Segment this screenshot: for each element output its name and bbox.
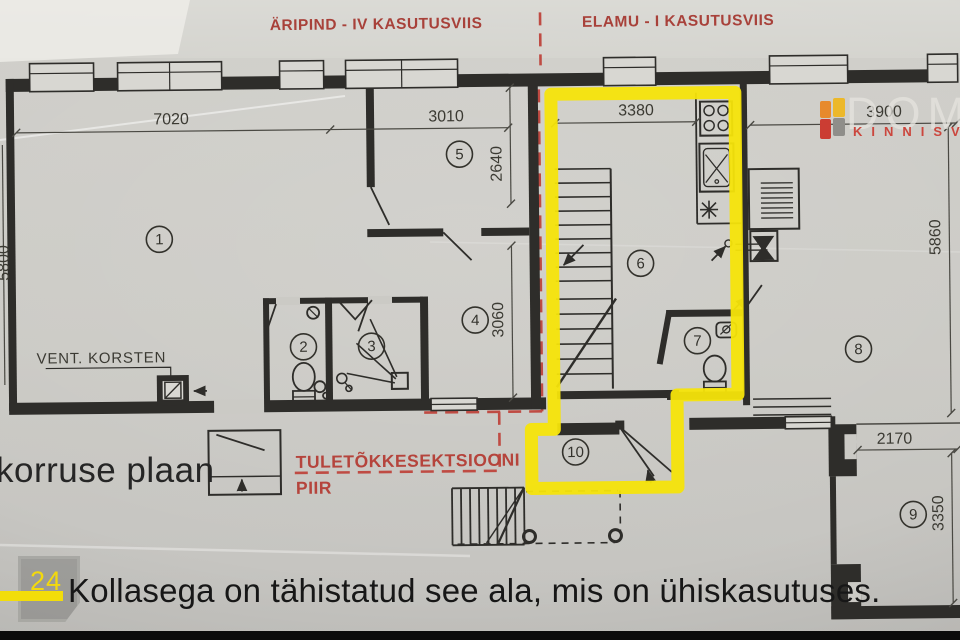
shower-room3-fixtures (336, 319, 408, 392)
section-label-left: ÄRIPIND - IV KASUTUSVIIS (270, 15, 483, 34)
brand-logo-icon (820, 98, 846, 140)
floorplan-photo: ÄRIPIND - IV KASUTUSVIIS ELAMU - I KASUT… (0, 0, 960, 640)
dim-room9-height: 3350 (930, 495, 947, 531)
floor-plan: ÄRIPIND - IV KASUTUSVIIS ELAMU - I KASUT… (0, 0, 960, 640)
plan-drawing: ÄRIPIND - IV KASUTUSVIIS ELAMU - I KASUT… (0, 8, 960, 628)
sink-icon (699, 143, 734, 191)
room-label-10: 10 (567, 444, 584, 461)
room-label-9: 9 (909, 506, 918, 523)
room-label-8: 8 (854, 341, 863, 358)
porch-steps (753, 398, 831, 415)
caption-text: Kollasega on tähistatud see ala, mis on … (68, 572, 880, 610)
dim-room9-width: 2170 (877, 430, 913, 447)
room-label-3: 3 (367, 338, 376, 355)
section-label-right: ELAMU - I KASUTUSVIIS (582, 12, 774, 31)
dim-room8-height: 5860 (927, 219, 944, 255)
asterisk-symbol (700, 201, 718, 219)
stove-icon (700, 101, 732, 135)
dim-room1-width: 7020 (153, 111, 189, 128)
room-label-1: 1 (155, 231, 164, 248)
room-label-2: 2 (299, 339, 308, 356)
floor-plan-title: korruse plaan (0, 451, 215, 491)
wc-room2-fixtures (292, 307, 329, 403)
fire-section-label-line1: TULETÕKKESEKTSIOONI (296, 449, 521, 472)
dim-room6-width: 3380 (618, 102, 654, 119)
exterior-stairs (452, 487, 622, 546)
room-label-4: 4 (471, 312, 480, 329)
vent-korsten-label: VENT. KORSTEN (37, 349, 167, 367)
brand-watermark: DOMU KINNISVA (820, 96, 960, 151)
page-number: 24 (30, 566, 62, 597)
entrance-vestibule (208, 430, 281, 495)
stairs (555, 169, 617, 390)
brand-subtitle: KINNISVA (853, 124, 960, 139)
dim-left-height: 5800 (0, 245, 13, 281)
dim-room5-width: 3010 (428, 108, 464, 125)
dimension-lines (2, 79, 960, 617)
room-label-7: 7 (693, 333, 702, 350)
bottom-bar (0, 631, 960, 640)
dim-room5-height: 2640 (488, 146, 505, 182)
room-label-5: 5 (455, 146, 464, 163)
vent-chimney (46, 367, 207, 402)
dim-room4-height: 3060 (490, 302, 507, 338)
room-label-6: 6 (636, 255, 645, 272)
fire-section-label-line2: PIIR (296, 478, 332, 498)
